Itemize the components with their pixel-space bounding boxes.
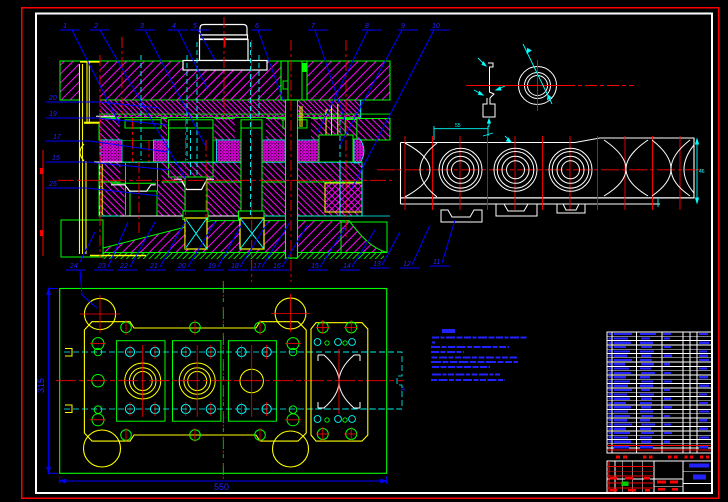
svg-text:15: 15	[52, 155, 60, 162]
svg-text:22: 22	[119, 263, 128, 270]
svg-text:14: 14	[343, 263, 351, 270]
svg-text:23: 23	[97, 263, 106, 270]
svg-text:6: 6	[255, 23, 259, 30]
svg-text:16: 16	[273, 263, 281, 270]
svg-text:15: 15	[311, 263, 319, 270]
svg-text:8: 8	[365, 23, 369, 30]
svg-text:55: 55	[455, 123, 461, 129]
svg-text:1: 1	[63, 23, 67, 30]
svg-text:4: 4	[172, 23, 176, 30]
svg-text:17: 17	[53, 134, 62, 141]
svg-text:11: 11	[433, 259, 440, 266]
svg-text:18: 18	[231, 263, 239, 270]
svg-text:3: 3	[140, 23, 144, 30]
svg-text:A: A	[400, 387, 405, 393]
svg-text:13: 13	[373, 261, 381, 268]
svg-text:20: 20	[177, 263, 186, 270]
svg-text:315: 315	[36, 378, 46, 393]
svg-text:20: 20	[48, 95, 57, 102]
svg-text:9: 9	[401, 23, 405, 30]
svg-text:550: 550	[214, 482, 229, 492]
svg-text:10: 10	[432, 23, 440, 30]
svg-text:25: 25	[48, 181, 57, 188]
svg-text:5: 5	[193, 23, 197, 30]
svg-text:21: 21	[149, 263, 158, 270]
svg-text:24: 24	[69, 263, 78, 270]
svg-text:2: 2	[93, 23, 98, 30]
svg-text:12: 12	[403, 261, 411, 268]
svg-text:19: 19	[49, 111, 57, 118]
svg-text:46: 46	[699, 169, 705, 175]
svg-text:19: 19	[208, 263, 216, 270]
svg-text:17: 17	[253, 263, 262, 270]
